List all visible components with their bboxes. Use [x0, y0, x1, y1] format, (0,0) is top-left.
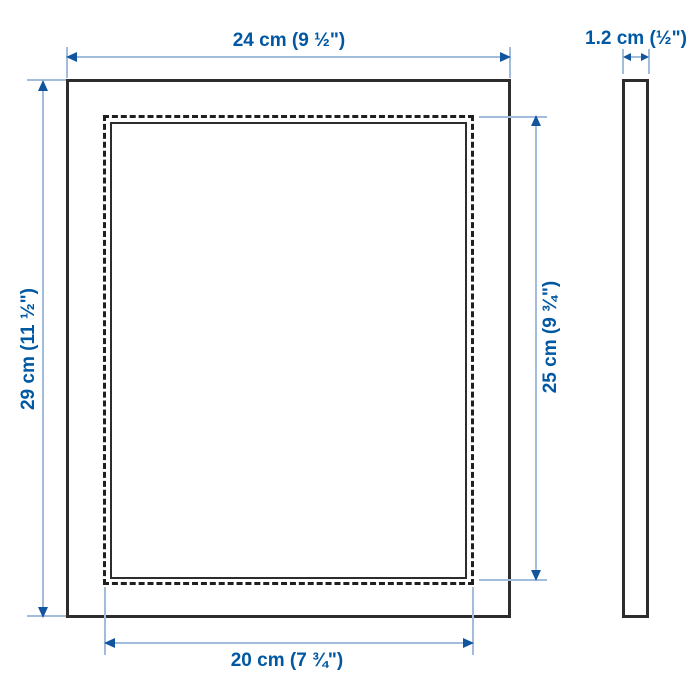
- frame-inner-opening-outline: [110, 122, 467, 579]
- thickness-label: 1.2 cm (½"): [546, 26, 700, 52]
- outer-width-label: 24 cm (9 ½"): [169, 28, 409, 54]
- arrowhead-left-icon: [66, 52, 77, 62]
- arrowhead-up-icon: [38, 80, 48, 91]
- arrowhead-left-icon: [623, 53, 631, 61]
- arrowhead-right-icon: [500, 52, 511, 62]
- dimension-line-outer-height: [42, 88, 44, 612]
- arrowhead-right-icon: [463, 638, 474, 648]
- dimension-line-inner-height: [535, 124, 537, 572]
- arrowhead-left-icon: [104, 638, 115, 648]
- arrowhead-right-icon: [641, 53, 649, 61]
- arrowhead-down-icon: [531, 570, 541, 581]
- outer-height-label: 29 cm (11 ½"): [16, 229, 42, 469]
- arrowhead-up-icon: [531, 115, 541, 126]
- frame-dimension-diagram: 24 cm (9 ½") 29 cm (11 ½") 25 cm (9 ¾") …: [0, 0, 700, 700]
- dimension-line-inner-width: [114, 642, 463, 644]
- inner-width-label: 20 cm (7 ¾"): [167, 648, 407, 674]
- arrowhead-down-icon: [38, 607, 48, 618]
- inner-height-label: 25 cm (9 ¾"): [538, 217, 564, 457]
- frame-side-profile-outline: [622, 79, 649, 618]
- dimension-line-outer-width: [76, 56, 501, 58]
